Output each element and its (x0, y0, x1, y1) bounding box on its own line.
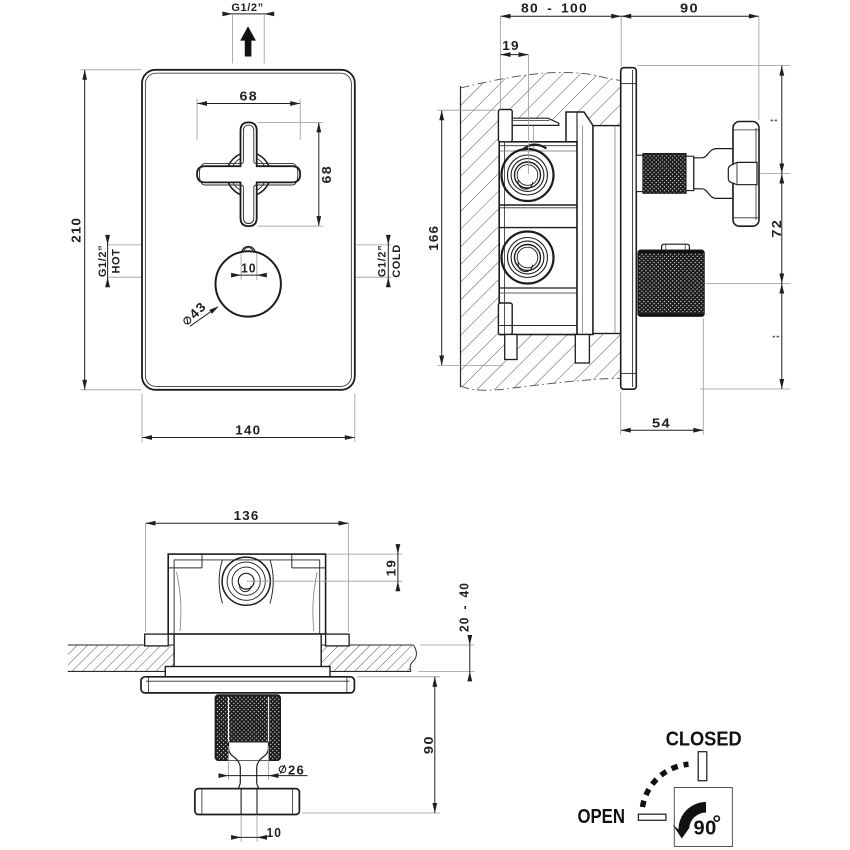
svg-text:90: 90 (421, 735, 436, 754)
svg-text:19: 19 (383, 559, 398, 577)
svg-text:166: 166 (426, 225, 441, 251)
svg-text:90: 90 (680, 0, 699, 15)
svg-text:80 - 100: 80 - 100 (521, 0, 588, 15)
svg-text:10: 10 (241, 260, 257, 275)
svg-text:20 - 40: 20 - 40 (457, 582, 472, 632)
svg-text:54: 54 (652, 415, 671, 430)
svg-text:140: 140 (235, 422, 261, 437)
svg-text:COLD: COLD (391, 244, 403, 278)
svg-text:136: 136 (234, 508, 260, 523)
svg-text:72: 72 (769, 219, 784, 238)
svg-text:68: 68 (240, 89, 259, 104)
svg-text:OPEN: OPEN (577, 806, 625, 828)
svg-text:G1/2”: G1/2” (97, 245, 109, 277)
svg-text:210: 210 (69, 217, 84, 243)
svg-text:26: 26 (288, 762, 305, 777)
svg-text:CLOSED: CLOSED (666, 728, 742, 750)
svg-text:G1/2”: G1/2” (231, 2, 263, 14)
svg-text:10: 10 (267, 825, 283, 840)
svg-text:HOT: HOT (110, 248, 122, 273)
svg-text:90: 90 (694, 818, 717, 840)
svg-text:68: 68 (319, 165, 334, 184)
svg-text:19: 19 (502, 38, 520, 53)
svg-text:G1/2”: G1/2” (377, 245, 389, 277)
